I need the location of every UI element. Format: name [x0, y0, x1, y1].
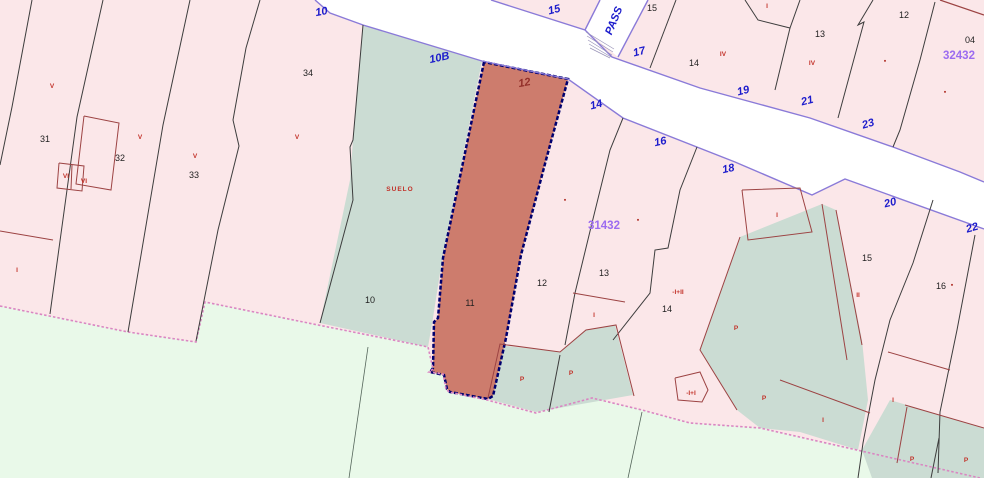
floors-v-4: V: [295, 134, 300, 141]
floors-i-strip: I: [776, 212, 778, 219]
floors-v-1: V: [50, 83, 55, 90]
parcel-number-34: 34: [303, 68, 313, 78]
parcel-number-10: 10: [365, 295, 375, 305]
patio-p-6: P: [964, 457, 969, 464]
floors-minus-i-plus-ii: -I+II: [672, 289, 684, 296]
parcel-number-12: 12: [537, 278, 547, 288]
block-number-32432: 32432: [943, 50, 975, 62]
floors-vi-1: VI: [63, 173, 69, 180]
parcel-number-14-upper: 14: [689, 58, 699, 68]
parcel-number-14: 14: [662, 304, 672, 314]
patio-p-1: P: [520, 376, 525, 383]
suelo-label: SUELO: [386, 186, 413, 193]
floors-i-upper: I: [766, 3, 768, 10]
parcel-number-33: 33: [189, 170, 199, 180]
floors-ii-right: II: [856, 292, 860, 299]
floors-iv-1: IV: [720, 51, 727, 58]
patio-p-5: P: [910, 456, 915, 463]
parcel-number-13-upper: 13: [815, 29, 825, 39]
parcel-number-04: 04: [965, 35, 975, 45]
parcel-number-13: 13: [599, 268, 609, 278]
parcel-number-16-right: 16: [936, 281, 946, 291]
block-number-31432: 31432: [588, 220, 620, 232]
floors-minus-i-plus-i: -I+I: [686, 390, 696, 397]
floors-i-right-2: I: [892, 397, 894, 404]
patio-p-4: P: [762, 395, 767, 402]
parcel-number-11: 11: [465, 298, 474, 308]
parcel-number-15-upper: 15: [647, 3, 657, 13]
floors-i-center: I: [593, 312, 595, 319]
floors-v-3: V: [193, 153, 198, 160]
street-number-12-selected: 12: [517, 76, 531, 90]
cadastral-map-viewport[interactable]: 101510B141716181921232022PASS12313233341…: [0, 0, 984, 478]
floors-iv-2: IV: [809, 60, 816, 67]
parcel-number-32: 32: [115, 153, 125, 163]
parcel-number-31: 31: [40, 134, 50, 144]
floors-vi-2: VI: [81, 178, 87, 185]
cadastral-map-canvas[interactable]: 101510B141716181921232022PASS12313233341…: [0, 0, 984, 478]
floors-v-2: V: [138, 134, 143, 141]
parcels-layer: [0, 0, 984, 478]
floors-i-left: I: [16, 267, 18, 274]
patio-p-3: P: [734, 325, 739, 332]
floors-i-right-1: I: [822, 417, 824, 424]
parcel-number-12-upper: 12: [899, 10, 909, 20]
parcel-number-15-right: 15: [862, 253, 872, 263]
patio-p-2: P: [569, 370, 574, 377]
